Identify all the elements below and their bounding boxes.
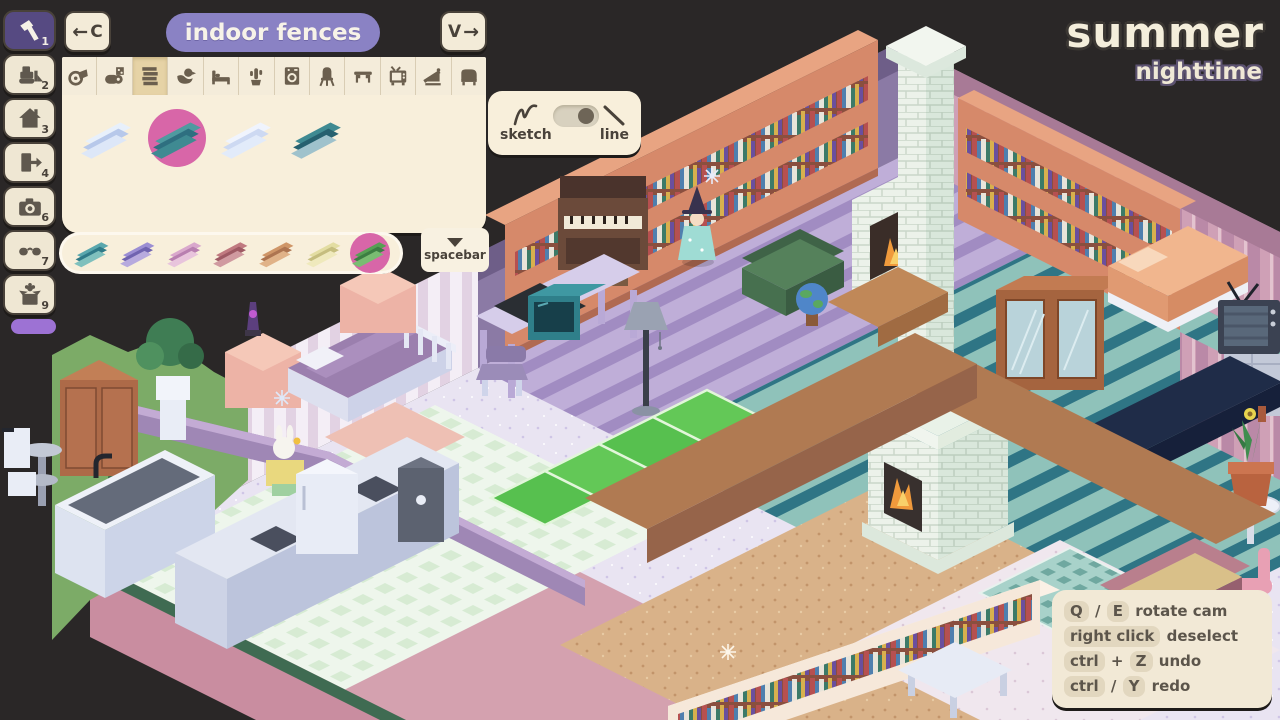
- hint-line: Q / E rotate cam: [1064, 599, 1260, 624]
- swatch-purple[interactable]: [116, 237, 160, 269]
- category-electronics[interactable]: [381, 57, 416, 95]
- chair-icon: [316, 65, 338, 87]
- gift-tool-button[interactable]: 9: [3, 274, 56, 315]
- season-indicator: summer nighttime: [1066, 8, 1264, 85]
- sidebar-progress-pill: [11, 319, 56, 334]
- category-tabs: [62, 57, 486, 95]
- spacebar-hint[interactable]: spacebar: [421, 228, 489, 272]
- toggle-knob: [578, 108, 594, 124]
- hint-text: deselect: [1166, 627, 1239, 645]
- exit-door-icon: [17, 150, 43, 176]
- hint-key: right click: [1064, 626, 1160, 647]
- yellow-swatch: [303, 238, 345, 268]
- category-title: indoor fences: [166, 13, 380, 52]
- next-hotkey-label: V: [448, 22, 461, 42]
- keyboard-hints-panel: Q / E rotate camright click deselectctrl…: [1052, 590, 1272, 708]
- fridge[interactable]: [296, 459, 358, 554]
- category-tables[interactable]: [345, 57, 380, 95]
- line-mode[interactable]: line: [600, 103, 629, 143]
- line-icon: [601, 103, 627, 127]
- tv-icon: [387, 65, 409, 87]
- hint-key: ctrl: [1064, 676, 1105, 697]
- bulldozer-tool-button[interactable]: 2: [3, 54, 56, 95]
- prev-category-button[interactable]: ← C: [64, 11, 111, 52]
- hint-line: ctrl + Z undo: [1064, 649, 1260, 674]
- category-appliances[interactable]: [275, 57, 310, 95]
- rose-swatch: [210, 238, 252, 268]
- tan-swatch: [256, 238, 298, 268]
- category-title-text: indoor fences: [185, 20, 362, 46]
- rubber-duck-icon: [174, 65, 196, 87]
- sparkle-icon: [274, 390, 290, 406]
- line-label: line: [600, 127, 629, 143]
- piano-icon: [458, 65, 480, 87]
- sunglasses-icon: [17, 238, 43, 264]
- hint-text: /: [1094, 602, 1101, 620]
- tool-hotkey: 4: [41, 167, 49, 180]
- hints-list: Q / E rotate camright click deselectctrl…: [1064, 599, 1260, 699]
- mode-toggle-switch[interactable]: [553, 105, 599, 127]
- flooring-roll-icon: [104, 65, 126, 87]
- sketch-label: sketch: [500, 127, 552, 143]
- category-plants[interactable]: [239, 57, 274, 95]
- swatch-rose[interactable]: [209, 237, 253, 269]
- tool-hotkey: 1: [41, 35, 49, 48]
- hint-text: undo: [1158, 652, 1202, 670]
- fence-item-0[interactable]: [76, 109, 138, 167]
- season-label: summer: [1066, 8, 1264, 57]
- fence-planks-icon: [139, 65, 161, 87]
- category-beds[interactable]: [204, 57, 239, 95]
- category-toys[interactable]: [168, 57, 203, 95]
- cake-slice-icon: [422, 65, 444, 87]
- sparkle-icon: [704, 168, 720, 184]
- draw-mode-panel: sketch line: [488, 91, 641, 155]
- triangle-down-icon: [447, 238, 463, 247]
- category-chairs[interactable]: [310, 57, 345, 95]
- time-of-day-label: nighttime: [1066, 59, 1262, 85]
- hammer-icon: [17, 18, 43, 44]
- white-fence-thumb: [219, 116, 275, 160]
- purple-swatch: [117, 238, 159, 268]
- teal-swatch: [71, 238, 113, 268]
- tool-hotkey: 6: [41, 211, 49, 224]
- hint-line: right click deselect: [1064, 624, 1260, 649]
- next-category-button[interactable]: V →: [440, 11, 487, 52]
- washing-machine-icon: [281, 65, 303, 87]
- pale-blue-fence-thumb: [79, 116, 135, 160]
- tool-sidebar: 1 2 3 4: [3, 10, 56, 315]
- hint-text: +: [1110, 652, 1125, 670]
- coffee-machine[interactable]: [398, 457, 444, 542]
- camera-tool-button[interactable]: 6: [3, 186, 56, 227]
- build-tool-button[interactable]: 1: [3, 10, 56, 51]
- gift-box-icon: [17, 282, 43, 308]
- color-swatch-bar: [62, 235, 400, 271]
- swatch-tan[interactable]: [255, 237, 299, 269]
- hint-text: /: [1110, 677, 1117, 695]
- swatch-green[interactable]: [348, 237, 392, 269]
- category-indoor-fences[interactable]: [133, 57, 168, 95]
- left-arrow-icon: ←: [72, 21, 88, 43]
- category-wallpaper[interactable]: [62, 57, 97, 95]
- hint-key: Y: [1123, 676, 1146, 697]
- tool-hotkey: 7: [41, 255, 49, 268]
- spacebar-label: spacebar: [424, 248, 486, 262]
- hint-text: rotate cam: [1134, 602, 1228, 620]
- fence-item-3[interactable]: [286, 109, 348, 167]
- bathroom-sink[interactable]: [2, 428, 36, 496]
- bed-icon: [210, 65, 232, 87]
- category-instruments[interactable]: [452, 57, 486, 95]
- bulldozer-icon: [17, 62, 43, 88]
- sparkle-icon: [720, 644, 736, 660]
- category-flooring[interactable]: [97, 57, 132, 95]
- pink-swatch: [164, 238, 206, 268]
- green-swatch: [349, 238, 391, 268]
- right-arrow-icon: →: [463, 21, 479, 43]
- camera-icon: [17, 194, 43, 220]
- swatch-yellow[interactable]: [301, 237, 345, 269]
- game-window: 1 2 3 4: [0, 0, 1280, 720]
- hint-key: ctrl: [1064, 651, 1105, 672]
- tool-hotkey: 9: [41, 299, 49, 312]
- hint-text: redo: [1151, 677, 1192, 695]
- hint-key: E: [1107, 601, 1129, 622]
- house-tool-button[interactable]: 3: [3, 98, 56, 139]
- hint-line: ctrl / Y redo: [1064, 674, 1260, 699]
- teal-fence-thumb: [149, 116, 205, 160]
- hint-key: Z: [1130, 651, 1153, 672]
- fence-item-1[interactable]: [146, 109, 208, 167]
- cactus-pot-icon: [245, 65, 267, 87]
- fence-items-panel: [62, 95, 486, 233]
- fence-item-2[interactable]: [216, 109, 278, 167]
- tool-hotkey: 2: [41, 79, 49, 92]
- dark-teal-fence-thumb: [289, 116, 345, 160]
- swatch-teal[interactable]: [70, 237, 114, 269]
- exit-tool-button[interactable]: 4: [3, 142, 56, 183]
- table-icon: [352, 65, 374, 87]
- sketch-squiggle-icon: [513, 103, 539, 127]
- sketch-mode[interactable]: sketch: [500, 103, 552, 143]
- category-food[interactable]: [416, 57, 451, 95]
- hint-key: Q: [1064, 601, 1089, 622]
- house-icon: [17, 106, 43, 132]
- wallpaper-roll-icon: [68, 65, 90, 87]
- view-tool-button[interactable]: 7: [3, 230, 56, 271]
- tool-hotkey: 3: [41, 123, 49, 136]
- back-hotkey-label: C: [90, 22, 102, 42]
- swatch-pink[interactable]: [163, 237, 207, 269]
